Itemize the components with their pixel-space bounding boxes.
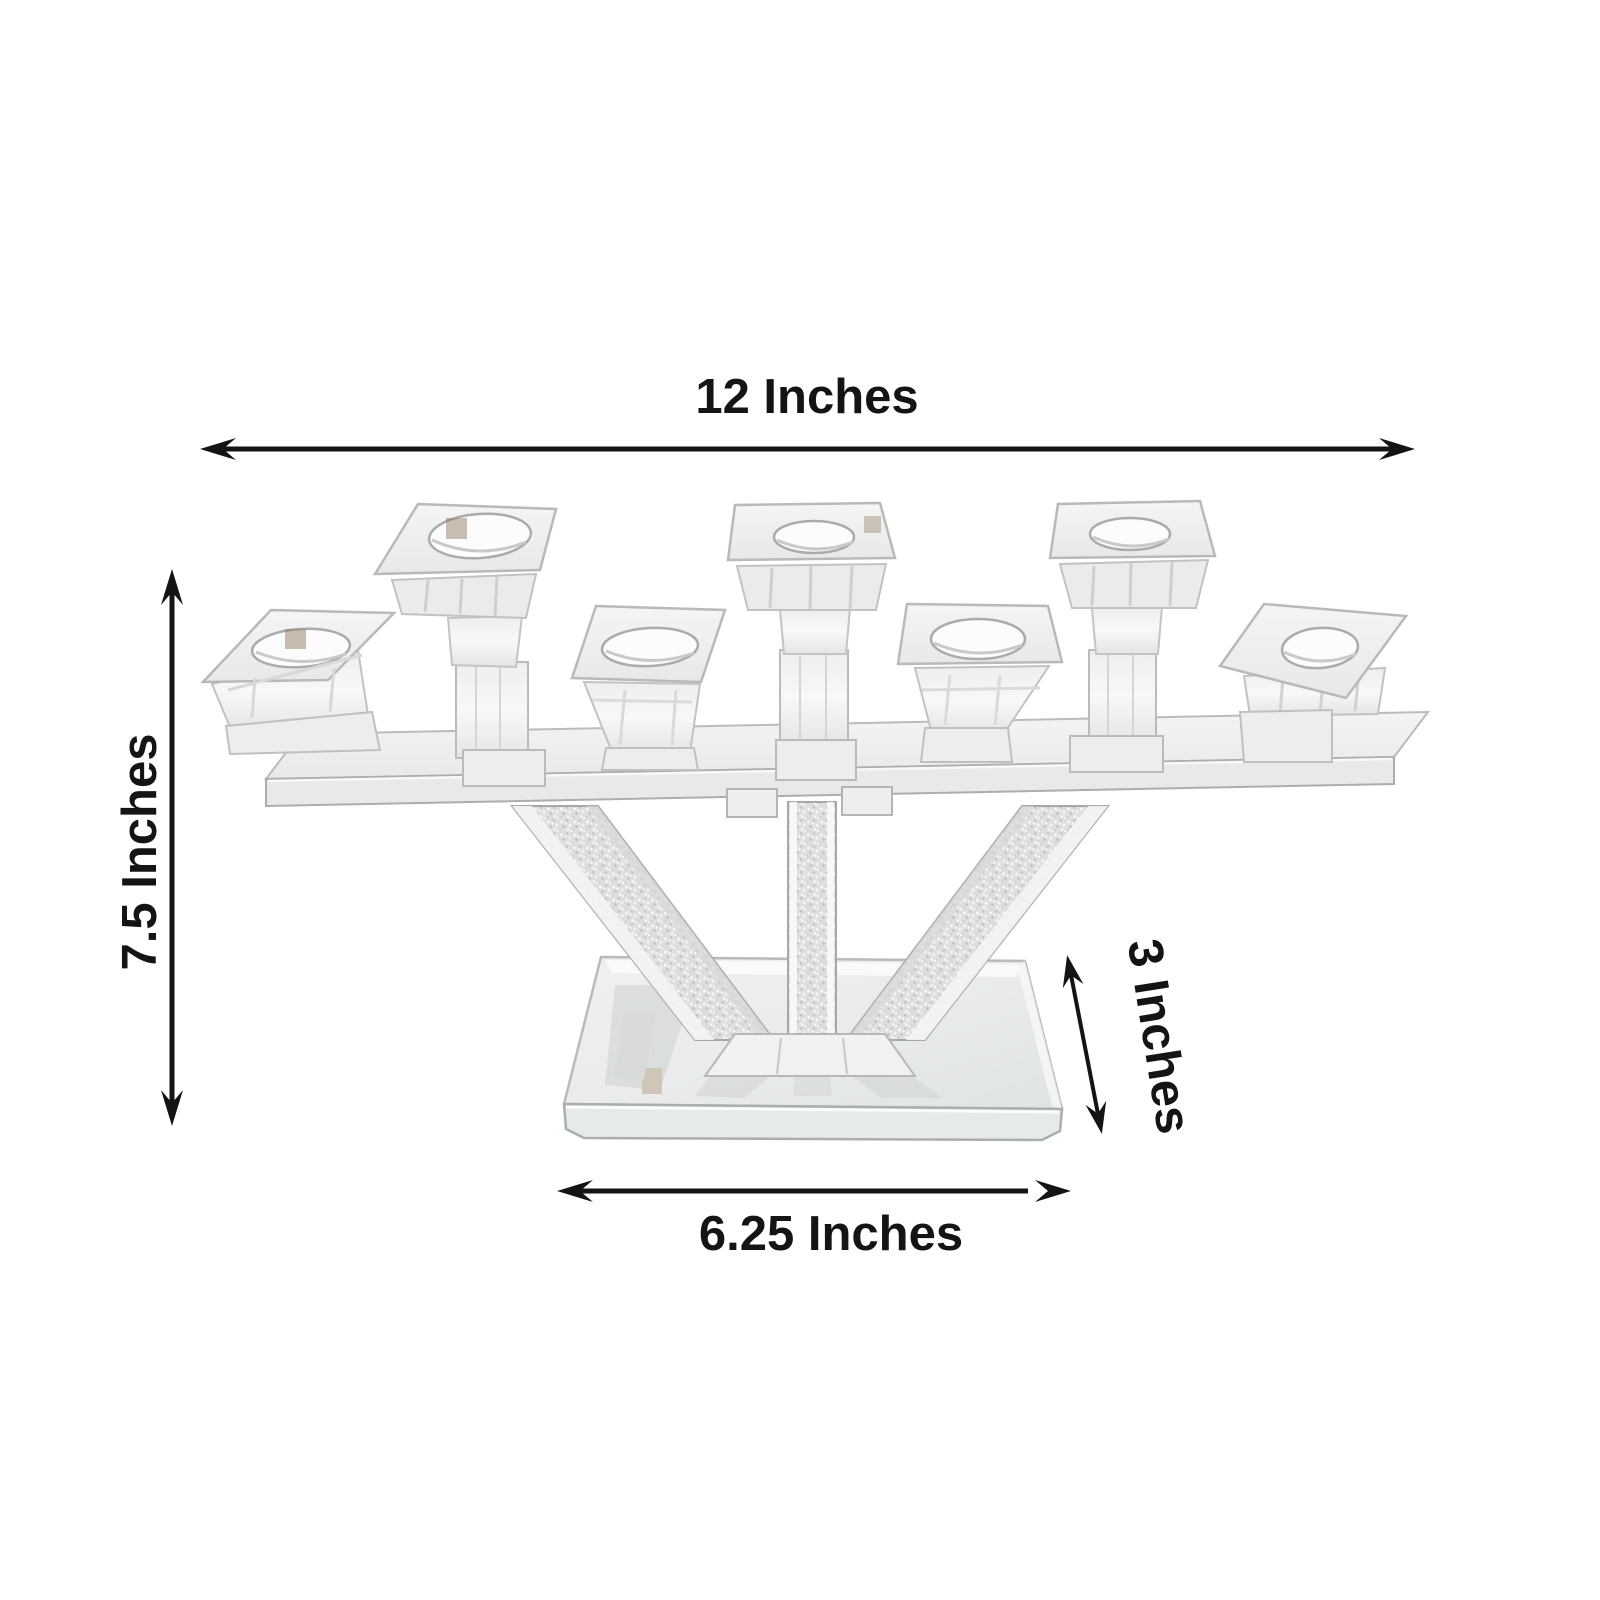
svg-text:7.5 Inches: 7.5 Inches — [113, 734, 167, 971]
svg-text:12 Inches: 12 Inches — [695, 370, 918, 424]
svg-text:6.25 Inches: 6.25 Inches — [699, 1207, 963, 1261]
